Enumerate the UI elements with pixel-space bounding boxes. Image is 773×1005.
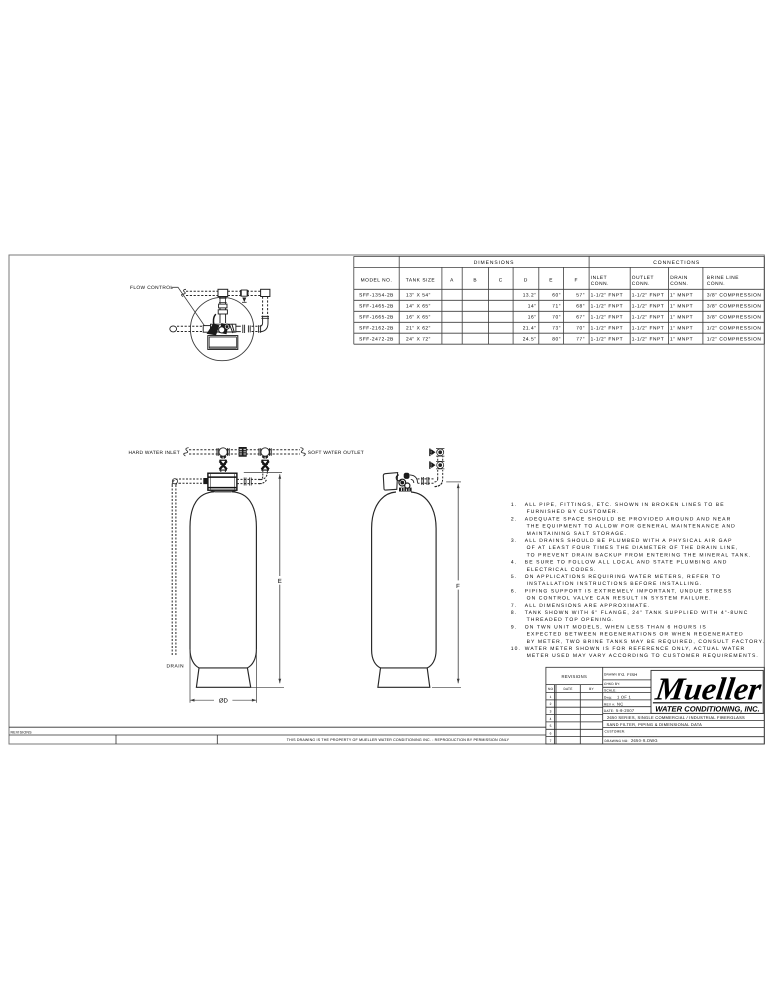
svg-text:FLOW CONTROL: FLOW CONTROL: [130, 285, 173, 291]
svg-text:CONN.: CONN.: [591, 281, 609, 287]
svg-text:SFF-2472-2B: SFF-2472-2B: [359, 336, 394, 342]
svg-text:1-1/2" FNPT: 1-1/2" FNPT: [591, 303, 624, 309]
svg-text:1" MNPT: 1" MNPT: [670, 303, 693, 309]
svg-text:WATER METER SHOWN IS FOR REFER: WATER METER SHOWN IS FOR REFERENCE ONLY,…: [525, 646, 745, 652]
svg-text:3: 3: [550, 710, 552, 714]
svg-text:1-1/2" FNPT: 1-1/2" FNPT: [591, 293, 624, 299]
svg-text:6.: 6.: [511, 588, 517, 594]
svg-text:BY METER, TWO BRINE TANKS MAY: BY METER, TWO BRINE TANKS MAY BE REQUIRE…: [527, 639, 765, 645]
svg-text:3/8" COMPRESSION: 3/8" COMPRESSION: [707, 314, 762, 320]
svg-text:SAND FILTER, PIPING & DIMENSIO: SAND FILTER, PIPING & DIMENSIONAL DATA: [607, 722, 703, 727]
svg-text:ALL PIPE, FITTINGS, ETC. SHOWN: ALL PIPE, FITTINGS, ETC. SHOWN IN BROKEN…: [525, 502, 725, 508]
svg-text:OUTLET: OUTLET: [632, 275, 654, 281]
svg-text:SFF-1354-2B: SFF-1354-2B: [359, 293, 394, 299]
svg-text:HARD WATER INLET: HARD WATER INLET: [129, 450, 180, 456]
svg-text:13.2": 13.2": [523, 293, 537, 299]
svg-text:1" MNPT: 1" MNPT: [670, 293, 693, 299]
svg-text:DRAWING NO:: DRAWING NO:: [605, 739, 629, 743]
svg-text:METER USED MAY VARY ACCORDING: METER USED MAY VARY ACCORDING TO CUSTOME…: [527, 653, 759, 659]
svg-text:70": 70": [576, 325, 585, 331]
svg-text:4.: 4.: [511, 560, 517, 566]
svg-text:ELECTRICAL CODES.: ELECTRICAL CODES.: [527, 567, 597, 573]
svg-text:EXPECTED BETWEEN REGENERATIONS: EXPECTED BETWEEN REGENERATIONS OR WHEN R…: [527, 632, 744, 638]
svg-text:E: E: [278, 578, 282, 585]
svg-text:INSTALLATION INSTRUCTIONS BEFO: INSTALLATION INSTRUCTIONS BEFORE INSTALL…: [527, 581, 703, 587]
svg-text:4: 4: [550, 717, 552, 721]
svg-text:1" MNPT: 1" MNPT: [670, 336, 693, 342]
svg-text:B: B: [473, 278, 477, 284]
svg-text:BE SURE TO FOLLOW ALL LOCAL AN: BE SURE TO FOLLOW ALL LOCAL AND STATE PL…: [525, 560, 728, 566]
svg-text:ALL DIMENSIONS ARE APPROXIMATE: ALL DIMENSIONS ARE APPROXIMATE.: [525, 603, 651, 609]
svg-text:INLET: INLET: [591, 275, 607, 281]
svg-text:NC: NC: [617, 701, 623, 706]
svg-text:PIPING SUPPORT IS EXTREMELY IM: PIPING SUPPORT IS EXTREMELY IMPORTANT, U…: [525, 588, 733, 594]
svg-text:7: 7: [550, 739, 552, 743]
svg-text:9.: 9.: [511, 624, 517, 630]
svg-text:TO PREVENT DRAIN BACKUP FROM E: TO PREVENT DRAIN BACKUP FROM ENTERING TH…: [527, 552, 752, 558]
svg-text:21.4": 21.4": [523, 325, 537, 331]
svg-text:5.: 5.: [511, 574, 517, 580]
svg-text:67": 67": [576, 314, 585, 320]
svg-text:60": 60": [552, 293, 561, 299]
svg-text:FURNISHED BY CUSTOMER.: FURNISHED BY CUSTOMER.: [527, 509, 620, 515]
svg-text:WATER CONDITIONING, INC.: WATER CONDITIONING, INC.: [655, 705, 759, 714]
svg-text:DATE:: DATE:: [604, 709, 614, 713]
svg-text:THREADED TOP OPENING.: THREADED TOP OPENING.: [527, 617, 615, 623]
svg-text:5-9-2007: 5-9-2007: [616, 708, 635, 713]
svg-text:1-1/2" FNPT: 1-1/2" FNPT: [591, 325, 624, 331]
svg-text:16": 16": [528, 314, 537, 320]
svg-text:OF AT LEAST FOUR TIMES THE DIA: OF AT LEAST FOUR TIMES THE DIAMETER OF T…: [527, 545, 739, 551]
svg-text:REV #:: REV #:: [604, 702, 615, 706]
svg-text:E: E: [549, 278, 553, 284]
svg-text:13" X 54": 13" X 54": [406, 293, 431, 299]
svg-text:F: F: [574, 278, 577, 284]
svg-text:1-1/2" FNPT: 1-1/2" FNPT: [632, 303, 665, 309]
svg-text:1.: 1.: [511, 502, 517, 508]
svg-text:ØD: ØD: [219, 698, 229, 705]
svg-text:SFF-1465-2B: SFF-1465-2B: [359, 303, 394, 309]
svg-text:1-1/2" FNPT: 1-1/2" FNPT: [632, 314, 665, 320]
svg-text:C: C: [499, 278, 503, 284]
svg-text:3/8" COMPRESSION: 3/8" COMPRESSION: [707, 303, 762, 309]
svg-text:NO: NO: [548, 687, 554, 691]
svg-text:6: 6: [550, 732, 552, 736]
svg-text:Mueller: Mueller: [653, 671, 764, 707]
svg-text:1-1/2" FNPT: 1-1/2" FNPT: [632, 336, 665, 342]
svg-text:ON CONTROL VALVE CAN RESULT IN: ON CONTROL VALVE CAN RESULT IN SYSTEM FA…: [527, 596, 712, 602]
svg-text:SFF-1665-2B: SFF-1665-2B: [359, 314, 394, 320]
svg-text:7.: 7.: [511, 603, 517, 609]
svg-text:80": 80": [552, 336, 561, 342]
svg-text:3.: 3.: [511, 538, 517, 544]
svg-text:1-1/2" FNPT: 1-1/2" FNPT: [632, 325, 665, 331]
svg-text:1-1/2" FNPT: 1-1/2" FNPT: [591, 314, 624, 320]
svg-text:ADEQUATE SPACE SHOULD BE PROVI: ADEQUATE SPACE SHOULD BE PROVIDED AROUND…: [525, 516, 732, 522]
svg-text:70": 70": [552, 314, 561, 320]
svg-text:CONN.: CONN.: [707, 281, 725, 287]
svg-text:REVISIONS: REVISIONS: [562, 674, 588, 679]
svg-text:DIMENSIONS: DIMENSIONS: [474, 260, 515, 266]
svg-text:3/8" COMPRESSION: 3/8" COMPRESSION: [707, 293, 762, 299]
svg-text:1-1/2" FNPT: 1-1/2" FNPT: [632, 293, 665, 299]
svg-text:DATE: DATE: [563, 687, 572, 691]
svg-text:CONN.: CONN.: [632, 281, 650, 287]
svg-text:5: 5: [550, 724, 552, 728]
svg-text:71": 71": [552, 303, 561, 309]
svg-text:CONNECTIONS: CONNECTIONS: [653, 260, 700, 266]
svg-text:2: 2: [550, 702, 552, 706]
svg-text:CONN.: CONN.: [670, 281, 688, 287]
svg-text:14": 14": [528, 303, 537, 309]
svg-text:1-1/2" FNPT: 1-1/2" FNPT: [591, 336, 624, 342]
svg-text:SOFT WATER OUTLET: SOFT WATER OUTLET: [308, 450, 364, 456]
svg-text:14" X 65": 14" X 65": [406, 303, 431, 309]
svg-text:BRINE LINE: BRINE LINE: [707, 275, 739, 281]
svg-text:DRAWN BY:: DRAWN BY:: [604, 673, 624, 677]
svg-text:1/2" COMPRESSION: 1/2" COMPRESSION: [707, 336, 762, 342]
svg-text:THIS DRAWING IS THE PROPERTY O: THIS DRAWING IS THE PROPERTY OF MUELLER …: [287, 738, 510, 742]
svg-text:A: A: [450, 278, 454, 284]
svg-text:THE EQUIPMENT TO ALLOW FOR GEN: THE EQUIPMENT TO ALLOW FOR GENERAL MAINT…: [527, 524, 736, 530]
svg-text:D: D: [524, 278, 528, 284]
svg-text:DRAIN: DRAIN: [670, 275, 688, 281]
svg-text:TANK SHOWN WITH 6" FLANGE, 24": TANK SHOWN WITH 6" FLANGE, 24" TANK SUPP…: [525, 610, 749, 616]
svg-text:ON APPLICATIONS REQUIRING WATE: ON APPLICATIONS REQUIRING WATER METERS, …: [525, 574, 721, 580]
svg-text:73": 73": [552, 325, 561, 331]
svg-text:16" X 65": 16" X 65": [406, 314, 431, 320]
svg-text:68": 68": [576, 303, 585, 309]
svg-text:SCALE:: SCALE:: [604, 689, 617, 693]
svg-text:21" X 62": 21" X 62": [406, 325, 431, 331]
svg-text:REVISIONS: REVISIONS: [11, 731, 33, 735]
svg-text:BY: BY: [589, 687, 594, 691]
svg-text:10.: 10.: [511, 646, 521, 652]
svg-text:TANK SIZE: TANK SIZE: [406, 278, 435, 284]
svg-text:24" X 72": 24" X 72": [406, 336, 431, 342]
svg-text:57": 57": [576, 293, 585, 299]
svg-text:2650-S.DWG: 2650-S.DWG: [631, 738, 658, 743]
svg-text:MAINTAINING SALT STORAGE.: MAINTAINING SALT STORAGE.: [527, 531, 627, 537]
svg-text:SFF-2162-2B: SFF-2162-2B: [359, 325, 394, 331]
svg-text:ON TWN UNIT MODELS, WHEN LESS: ON TWN UNIT MODELS, WHEN LESS THAN 6 HOU…: [525, 624, 707, 630]
svg-text:J. FISH: J. FISH: [622, 672, 637, 677]
svg-text:2650 SERIES, SINGLE COMMERCIAL: 2650 SERIES, SINGLE COMMERCIAL / INDUSTR…: [607, 715, 745, 720]
svg-text:1" MNPT: 1" MNPT: [670, 314, 693, 320]
svg-text:77": 77": [576, 336, 585, 342]
svg-text:2.: 2.: [511, 516, 517, 522]
svg-text:8.: 8.: [511, 610, 517, 616]
svg-text:1 OF 1: 1 OF 1: [617, 694, 632, 699]
svg-text:1: 1: [550, 695, 552, 699]
svg-text:24.5": 24.5": [523, 336, 537, 342]
svg-text:ALL DRAINS SHOULD BE PLUMBED W: ALL DRAINS SHOULD BE PLUMBED WITH A PHYS…: [525, 538, 733, 544]
svg-text:DRAIN: DRAIN: [167, 664, 185, 670]
svg-text:1" MNPT: 1" MNPT: [670, 325, 693, 331]
svg-text:Dwg:: Dwg:: [604, 695, 612, 699]
svg-text:CUSTOMER:: CUSTOMER:: [605, 730, 626, 734]
svg-text:1/2" COMPRESSION: 1/2" COMPRESSION: [707, 325, 762, 331]
svg-text:F: F: [456, 583, 460, 590]
svg-text:CHKD BY:: CHKD BY:: [604, 682, 620, 686]
svg-text:MODEL NO.: MODEL NO.: [361, 278, 393, 284]
